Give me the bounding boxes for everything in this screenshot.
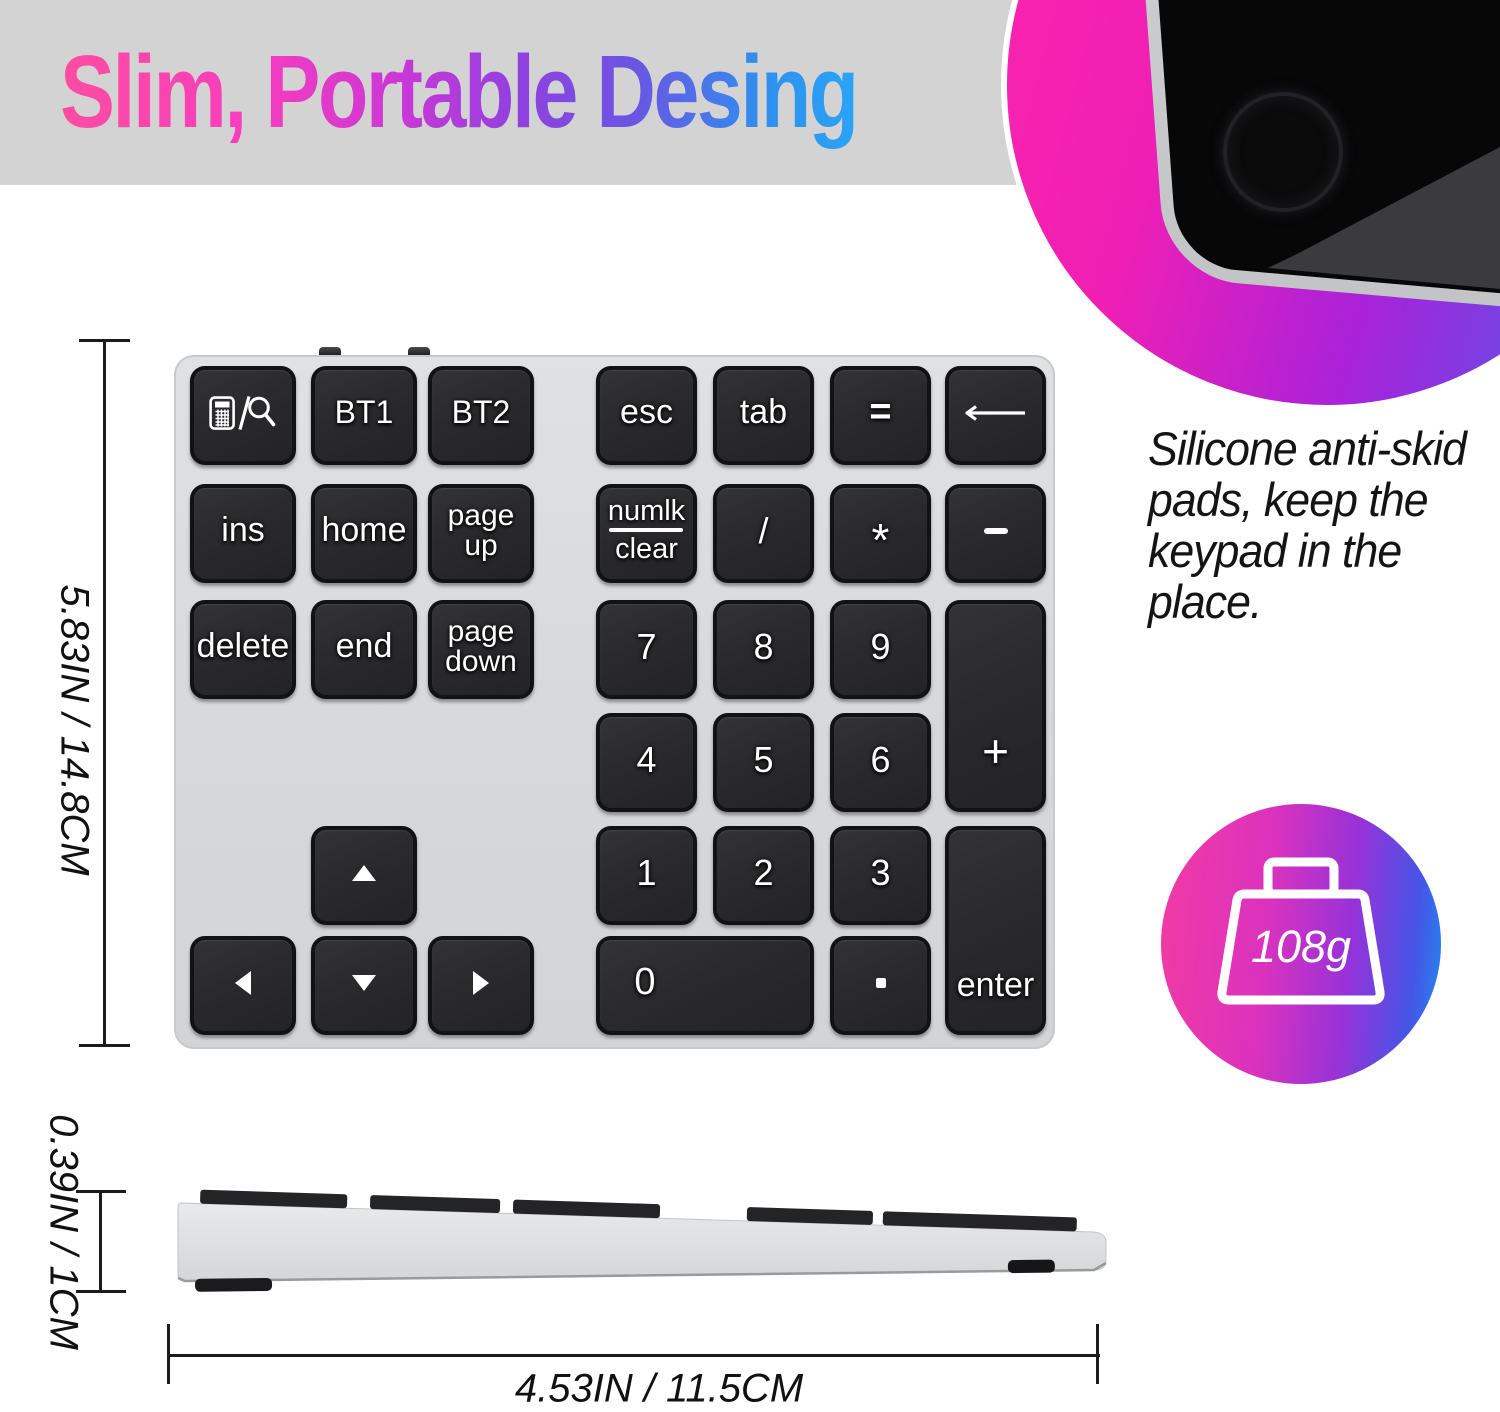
svg-text:108g: 108g bbox=[1251, 921, 1351, 972]
